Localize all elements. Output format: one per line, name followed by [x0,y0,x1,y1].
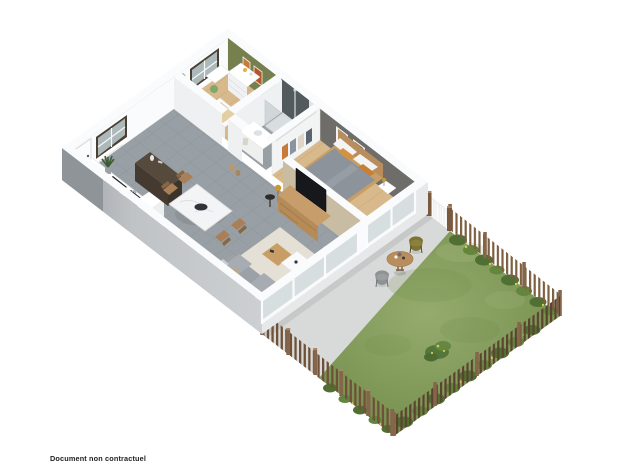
bedside-lamp [382,178,386,182]
desk-chair [210,85,218,93]
floorplan-render: Document non contractuel [0,0,640,470]
caption: Document non contractuel [50,454,146,463]
floor-lamp [275,185,281,191]
floorplan-canvas: Document non contractuel [0,0,640,470]
